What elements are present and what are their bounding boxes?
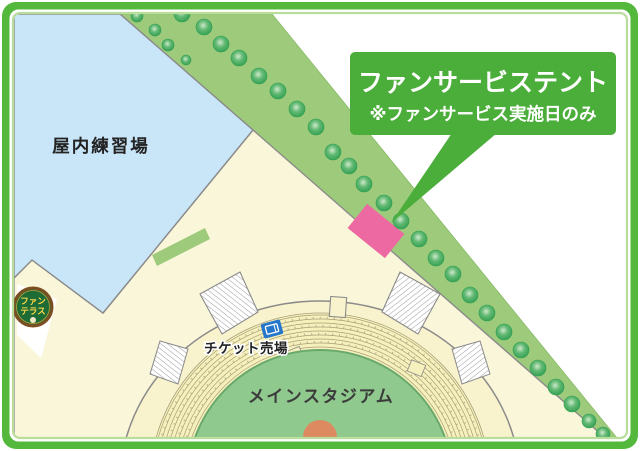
callout-title: ファンサービステント (358, 69, 608, 97)
tree-icon (462, 287, 478, 303)
tree-icon (530, 360, 546, 376)
tree-icon (231, 50, 247, 66)
tree-icon (411, 231, 427, 247)
label-indoor-practice-field: 屋内練習場 (52, 136, 150, 156)
tree-icon (213, 36, 229, 52)
label-main-stadium: メインスタジアム (248, 387, 394, 406)
tree-icon (428, 250, 444, 266)
tree-icon (376, 195, 392, 211)
tree-icon (479, 305, 495, 321)
tree-icon (548, 379, 564, 395)
stadium-stub (329, 296, 346, 317)
tree-icon (325, 144, 341, 160)
fan-terrace-badge: ファン テラス (14, 288, 52, 326)
tree-icon (196, 19, 212, 35)
badge-mascot (30, 317, 36, 323)
tree-icon (393, 213, 409, 229)
tree-icon (564, 396, 580, 412)
tree-icon (149, 24, 161, 36)
tree-icon (270, 83, 286, 99)
tree-icon (251, 68, 267, 84)
tree-icon (356, 176, 372, 192)
tree-icon (341, 158, 357, 174)
tree-icon (181, 55, 191, 65)
badge-text-2: テラス (20, 306, 45, 316)
tree-icon (496, 324, 512, 340)
callout-note: ※ファンサービス実施日のみ (369, 104, 596, 124)
tree-icon (582, 414, 596, 428)
label-ticket-booth: チケット売場 (204, 340, 288, 356)
tree-icon (513, 342, 529, 358)
tree-icon (289, 101, 305, 117)
tree-icon (445, 266, 461, 282)
badge-text-1: ファン (20, 296, 46, 306)
tree-icon (162, 39, 174, 51)
stadium-map: 屋内練習場 チケット売場 メインスタジアム ファン テラス ファンサービステント… (0, 0, 640, 451)
tree-icon (308, 119, 324, 135)
